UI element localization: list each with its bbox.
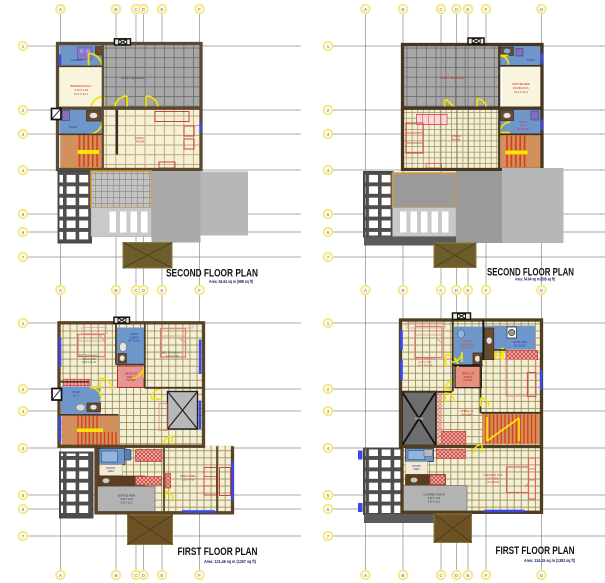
svg-text:3.30 X 3.60: 3.30 X 3.60 (166, 355, 179, 358)
svg-text:E: E (161, 288, 164, 293)
svg-text:E: E (467, 7, 470, 12)
svg-text:B: B (401, 288, 404, 293)
svg-text:10.2 X 12.1: 10.2 X 12.1 (514, 90, 528, 94)
svg-text:D: D (142, 288, 145, 293)
svg-text:3.30 X 4.60: 3.30 X 4.60 (182, 479, 195, 482)
svg-text:E: E (161, 7, 164, 12)
svg-text:F: F (485, 7, 488, 12)
svg-text:Area: 54.64 sq m (588 sq ft): Area: 54.64 sq m (588 sq ft) (515, 277, 555, 282)
svg-text:Area: 121.46 sq m (1307 sq ft): Area: 121.46 sq m (1307 sq ft) (204, 559, 257, 564)
svg-text:PANTRY: PANTRY (106, 467, 116, 470)
svg-text:F: F (198, 7, 201, 12)
svg-text:SECOND FLOOR PLAN: SECOND FLOOR PLAN (166, 268, 258, 280)
svg-text:B: B (401, 573, 404, 578)
svg-text:D: D (142, 7, 145, 12)
svg-text:DINING: DINING (451, 134, 460, 138)
svg-text:PANTRY: PANTRY (412, 465, 422, 468)
svg-text:Area: 54.64 sq m (588 sq ft): Area: 54.64 sq m (588 sq ft) (209, 279, 253, 284)
svg-text:F: F (198, 573, 201, 578)
svg-text:F: F (198, 288, 201, 293)
svg-text:OPEN: OPEN (415, 417, 424, 421)
svg-text:B: B (401, 7, 404, 12)
svg-text:B: B (114, 573, 117, 578)
svg-text:CLOSET: CLOSET (463, 379, 473, 382)
svg-text:LAUNDRY: LAUNDRY (71, 58, 84, 62)
svg-text:Area: 134.15 sq m (1383 sq ft): Area: 134.15 sq m (1383 sq ft) (524, 558, 576, 563)
svg-text:10.1 X 11.10: 10.1 X 11.10 (418, 364, 433, 367)
svg-text:OPEN TERRACE: OPEN TERRACE (440, 76, 464, 80)
svg-text:HALLWAY: HALLWAY (461, 414, 473, 417)
svg-text:E: E (161, 573, 164, 578)
svg-text:NO SCALE: NO SCALE (517, 128, 529, 131)
svg-text:NO SCALE: NO SCALE (487, 481, 499, 484)
svg-text:E: E (467, 573, 470, 578)
svg-text:TOILET: TOILET (68, 125, 77, 129)
svg-text:ROOM: ROOM (136, 140, 145, 144)
svg-text:10.2 X 14.1: 10.2 X 14.1 (74, 92, 88, 96)
svg-text:AREA: AREA (108, 470, 115, 473)
svg-text:D: D (455, 288, 458, 293)
svg-text:MASTER BED: MASTER BED (512, 82, 530, 86)
svg-text:TOILET: TOILET (527, 59, 536, 62)
svg-text:G: G (540, 288, 544, 293)
svg-text:AREA: AREA (413, 468, 420, 471)
svg-text:F: F (485, 573, 488, 578)
svg-text:NO SCALE: NO SCALE (128, 340, 140, 343)
svg-text:D: D (455, 573, 458, 578)
svg-text:FIRST FLOOR PLAN: FIRST FLOOR PLAN (178, 546, 258, 558)
svg-text:G: G (540, 573, 544, 578)
svg-text:F: F (485, 288, 488, 293)
svg-text:B: B (114, 288, 117, 293)
svg-text:FAMILY: FAMILY (135, 136, 145, 140)
svg-text:E: E (467, 288, 470, 293)
svg-text:3.10 X 4.30: 3.10 X 4.30 (74, 88, 88, 92)
svg-text:NO SCALE: NO SCALE (514, 344, 526, 347)
svg-text:9.10 X 13.1: 9.10 X 13.1 (428, 501, 441, 504)
svg-text:9.10 X 13.1: 9.10 X 13.1 (120, 502, 133, 505)
svg-text:CLOSET: CLOSET (126, 379, 136, 382)
svg-text:FIRST FLOOR PLAN: FIRST FLOOR PLAN (496, 545, 575, 557)
svg-text:B: B (114, 7, 117, 12)
svg-text:9.10 X 11.10: 9.10 X 11.10 (82, 361, 97, 364)
svg-text:BEDROOM NO.1: BEDROOM NO.1 (71, 84, 92, 88)
svg-text:OPEN TERRACE: OPEN TERRACE (121, 76, 145, 80)
svg-text:ROOM NO.5: ROOM NO.5 (513, 86, 529, 90)
svg-text:D: D (455, 7, 458, 12)
svg-text:NO. 2: NO. 2 (73, 394, 80, 397)
svg-text:G: G (540, 7, 544, 12)
svg-text:NO SCALE: NO SCALE (461, 347, 473, 350)
svg-text:D: D (142, 573, 145, 578)
